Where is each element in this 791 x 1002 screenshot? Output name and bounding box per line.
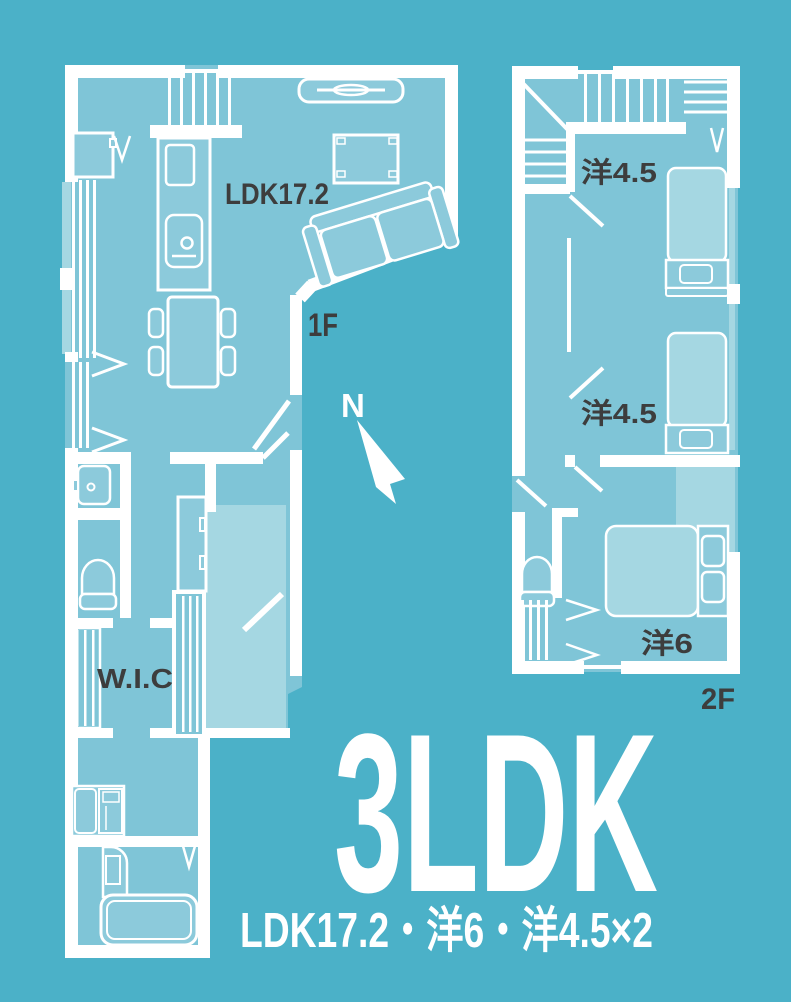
tv-board-icon [299, 79, 403, 102]
hall-closet-icon [172, 590, 206, 738]
shoe-cabinet-icon [178, 497, 206, 591]
window-strip [729, 304, 735, 450]
room-label-yo45-2: 洋4.5 [581, 397, 657, 429]
compass: N [341, 387, 405, 504]
double-bed-icon [606, 526, 728, 616]
floor2-label: 2F [701, 683, 735, 716]
sliding-partition [567, 238, 571, 352]
wall-stub [565, 455, 575, 467]
entrance-area [206, 505, 286, 729]
coffee-table-icon [334, 135, 398, 183]
sink-icon [166, 215, 202, 267]
room-label-yo6: 洋6 [641, 627, 693, 659]
plan-title: 3LDK [334, 686, 658, 939]
refrigerator-icon [73, 133, 116, 177]
compass-label: N [341, 387, 365, 424]
window-strip [729, 470, 735, 554]
partition-wall [600, 455, 740, 467]
pillow-icon [702, 536, 724, 566]
light-area [676, 458, 735, 528]
dining-table-icon [168, 297, 218, 387]
wic-label: W.I.C [97, 663, 173, 694]
floor-plan-poster: N LDK17.2 1F W.I.C 洋4.5 洋4.5 洋6 2F 3LDK … [0, 0, 791, 1002]
floor-plan-canvas: N LDK17.2 1F W.I.C 洋4.5 洋4.5 洋6 2F 3LDK … [0, 0, 791, 1002]
single-bed-icon [666, 168, 728, 296]
plan-subtitle: LDK17.2・洋6・洋4.5×2 [240, 904, 653, 958]
ldk-room-label: LDK17.2 [225, 178, 329, 211]
pillow-icon [702, 572, 724, 602]
window-strip [729, 188, 735, 284]
bathtub-icon [101, 895, 197, 945]
toilet-icon [80, 560, 116, 609]
floor1-label: 1F [308, 307, 338, 343]
single-bed-icon [666, 333, 728, 453]
north-arrow-icon [357, 420, 405, 504]
kitchen-counter-icon [158, 138, 210, 290]
vanity-icon [72, 786, 124, 836]
stove-icon [166, 145, 194, 185]
washstand-icon [73, 466, 110, 504]
room-label-yo45-1: 洋4.5 [581, 156, 657, 188]
